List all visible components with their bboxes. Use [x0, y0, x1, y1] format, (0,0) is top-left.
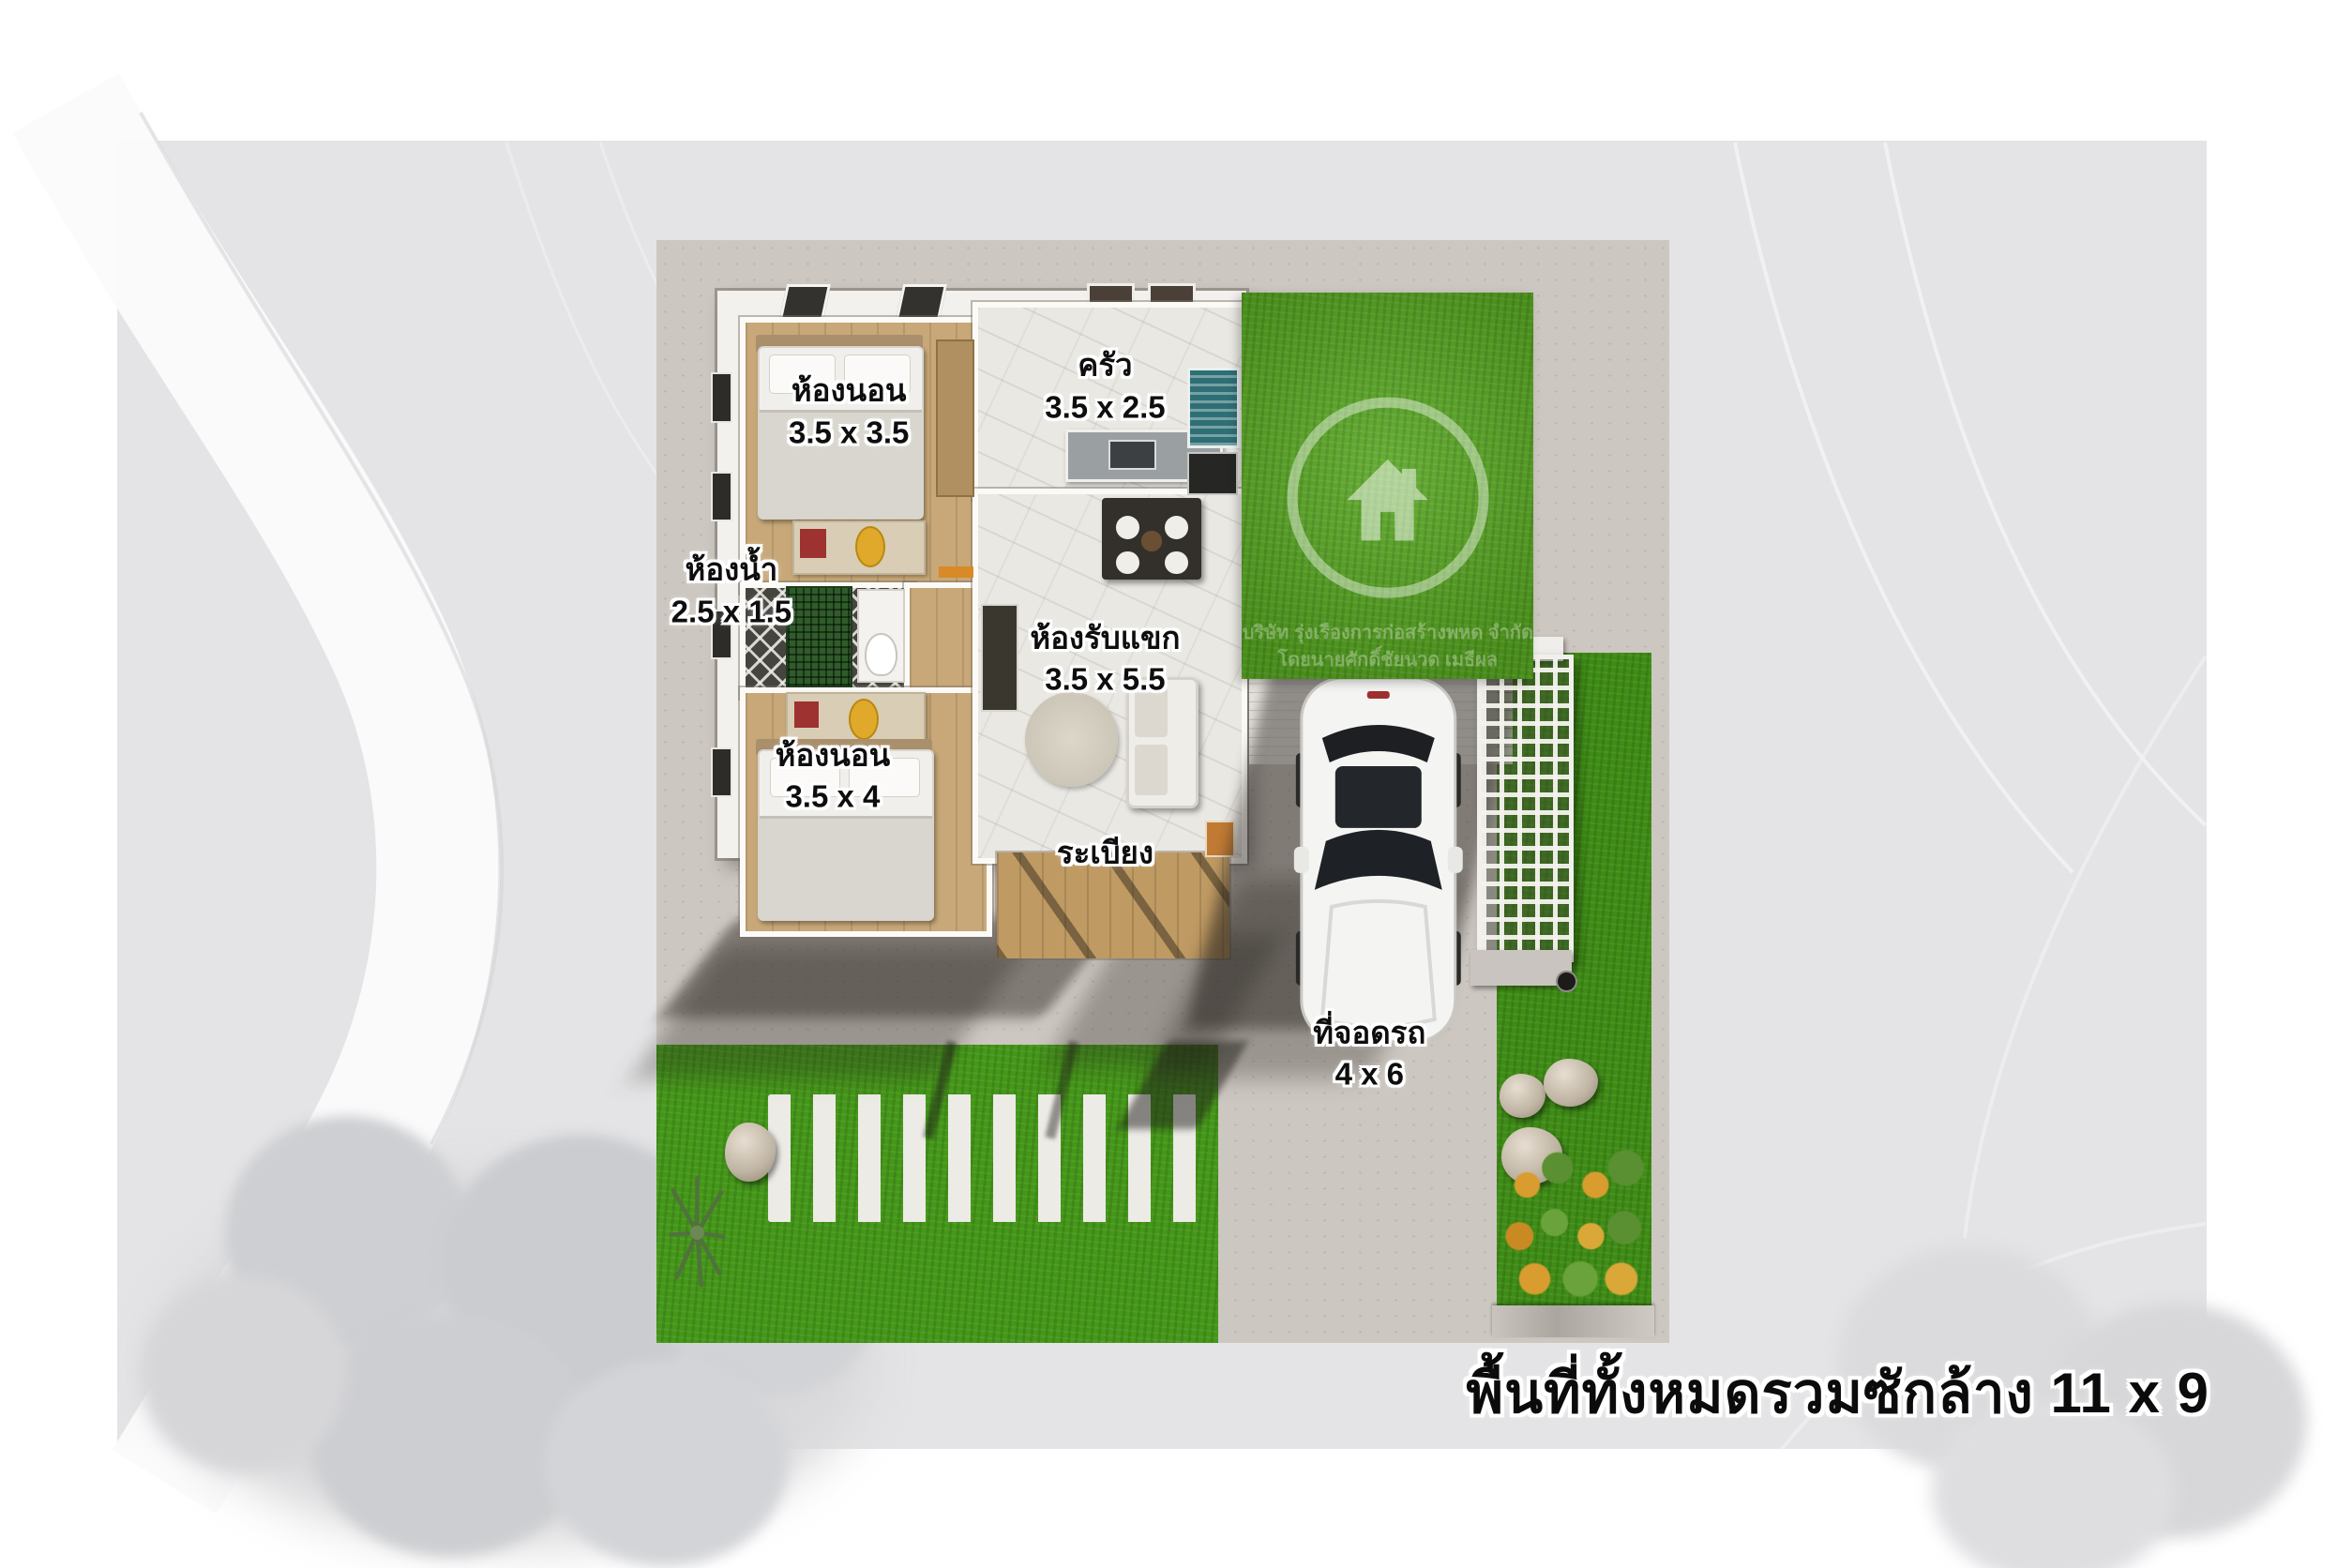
- room-label-living: ห้องรับแขก 3.5 x 5.5: [1030, 617, 1180, 701]
- room-dims: 2.5 x 1.5: [671, 591, 792, 633]
- room-name: ห้องนอน: [789, 370, 909, 413]
- trellis-fence: [1477, 655, 1574, 962]
- house-logo-icon: [1328, 438, 1447, 557]
- room-label-kitchen: ครัว 3.5 x 2.5: [1045, 345, 1165, 429]
- dining-plate: [1116, 516, 1139, 539]
- room-name: ระเบียง: [1057, 833, 1153, 875]
- dining-plate: [1165, 551, 1188, 575]
- room-name: ที่จอดรถ: [1313, 1012, 1425, 1054]
- fridge: [1187, 368, 1240, 448]
- flower-bush: [1497, 1134, 1649, 1304]
- room-name: ครัว: [1045, 345, 1165, 387]
- dining-plate: [1165, 516, 1188, 539]
- room-dims: 3.5 x 3.5: [789, 412, 909, 454]
- roof-vent: [779, 284, 831, 320]
- floor-plan-poster: บริษัท รุ่งเรืองการก่อสร้างพหด จำกัด โดย…: [0, 0, 2352, 1568]
- floor-plan: บริษัท รุ่งเรืองการก่อสร้างพหด จำกัด โดย…: [656, 240, 1669, 1343]
- agave-plant: [667, 1161, 728, 1304]
- room-dims: 3.5 x 5.5: [1030, 659, 1180, 701]
- room-label-carport: ที่จอดรถ 4 x 6: [1313, 1012, 1425, 1095]
- room-name: ห้องนอน: [776, 734, 891, 776]
- shower-mat: [786, 586, 852, 686]
- room-label-bathroom: ห้องน้ำ 2.5 x 1.5: [671, 549, 792, 632]
- room-name: ห้องรับแขก: [1030, 617, 1180, 659]
- rug: [1025, 692, 1118, 787]
- tree-canopy: [141, 1275, 347, 1472]
- room-dims: 3.5 x 2.5: [1045, 386, 1165, 429]
- dining-centerpiece: [1141, 531, 1162, 550]
- room-dims: 4 x 6: [1313, 1054, 1425, 1096]
- kitchen-sink: [1108, 440, 1157, 470]
- room-label-bedroom-top: ห้องนอน 3.5 x 3.5: [789, 370, 909, 454]
- room-label-bedroom-bottom: ห้องนอน 3.5 x 4: [776, 734, 891, 818]
- clothes-rail: [939, 566, 973, 578]
- desk-chair: [855, 526, 885, 567]
- watermark-line2: โดยนายศักดิ์ชัยนวด เมธีผล: [1277, 644, 1498, 674]
- logo-grass-square: บริษัท รุ่งเรืองการก่อสร้างพหด จำกัด โดย…: [1242, 293, 1533, 679]
- desk-books: [794, 701, 819, 728]
- tv-console: [981, 604, 1019, 712]
- toilet: [865, 633, 897, 676]
- watermark-ring: [1287, 397, 1488, 598]
- window-slot: [711, 372, 731, 422]
- total-area-label: พื้นที่ทั้งหมดรวมซักล้าง 11 x 9: [1467, 1349, 2209, 1438]
- car-top-view: [1292, 672, 1465, 1048]
- room-label-porch: ระเบียง: [1057, 833, 1153, 875]
- desk-books: [800, 529, 826, 558]
- tree-canopy: [544, 1360, 788, 1566]
- window-slot: [711, 747, 731, 797]
- room-dims: 3.5 x 4: [776, 776, 891, 819]
- roof-vent: [896, 284, 947, 320]
- watermark-line1: บริษัท รุ่งเรืองการก่อสร้างพหด จำกัด: [1243, 617, 1533, 647]
- stove: [1187, 452, 1238, 495]
- stone-curb: [1492, 1305, 1654, 1337]
- room-name: ห้องน้ำ: [671, 549, 792, 591]
- wardrobe: [936, 339, 974, 498]
- window-slot: [711, 472, 731, 521]
